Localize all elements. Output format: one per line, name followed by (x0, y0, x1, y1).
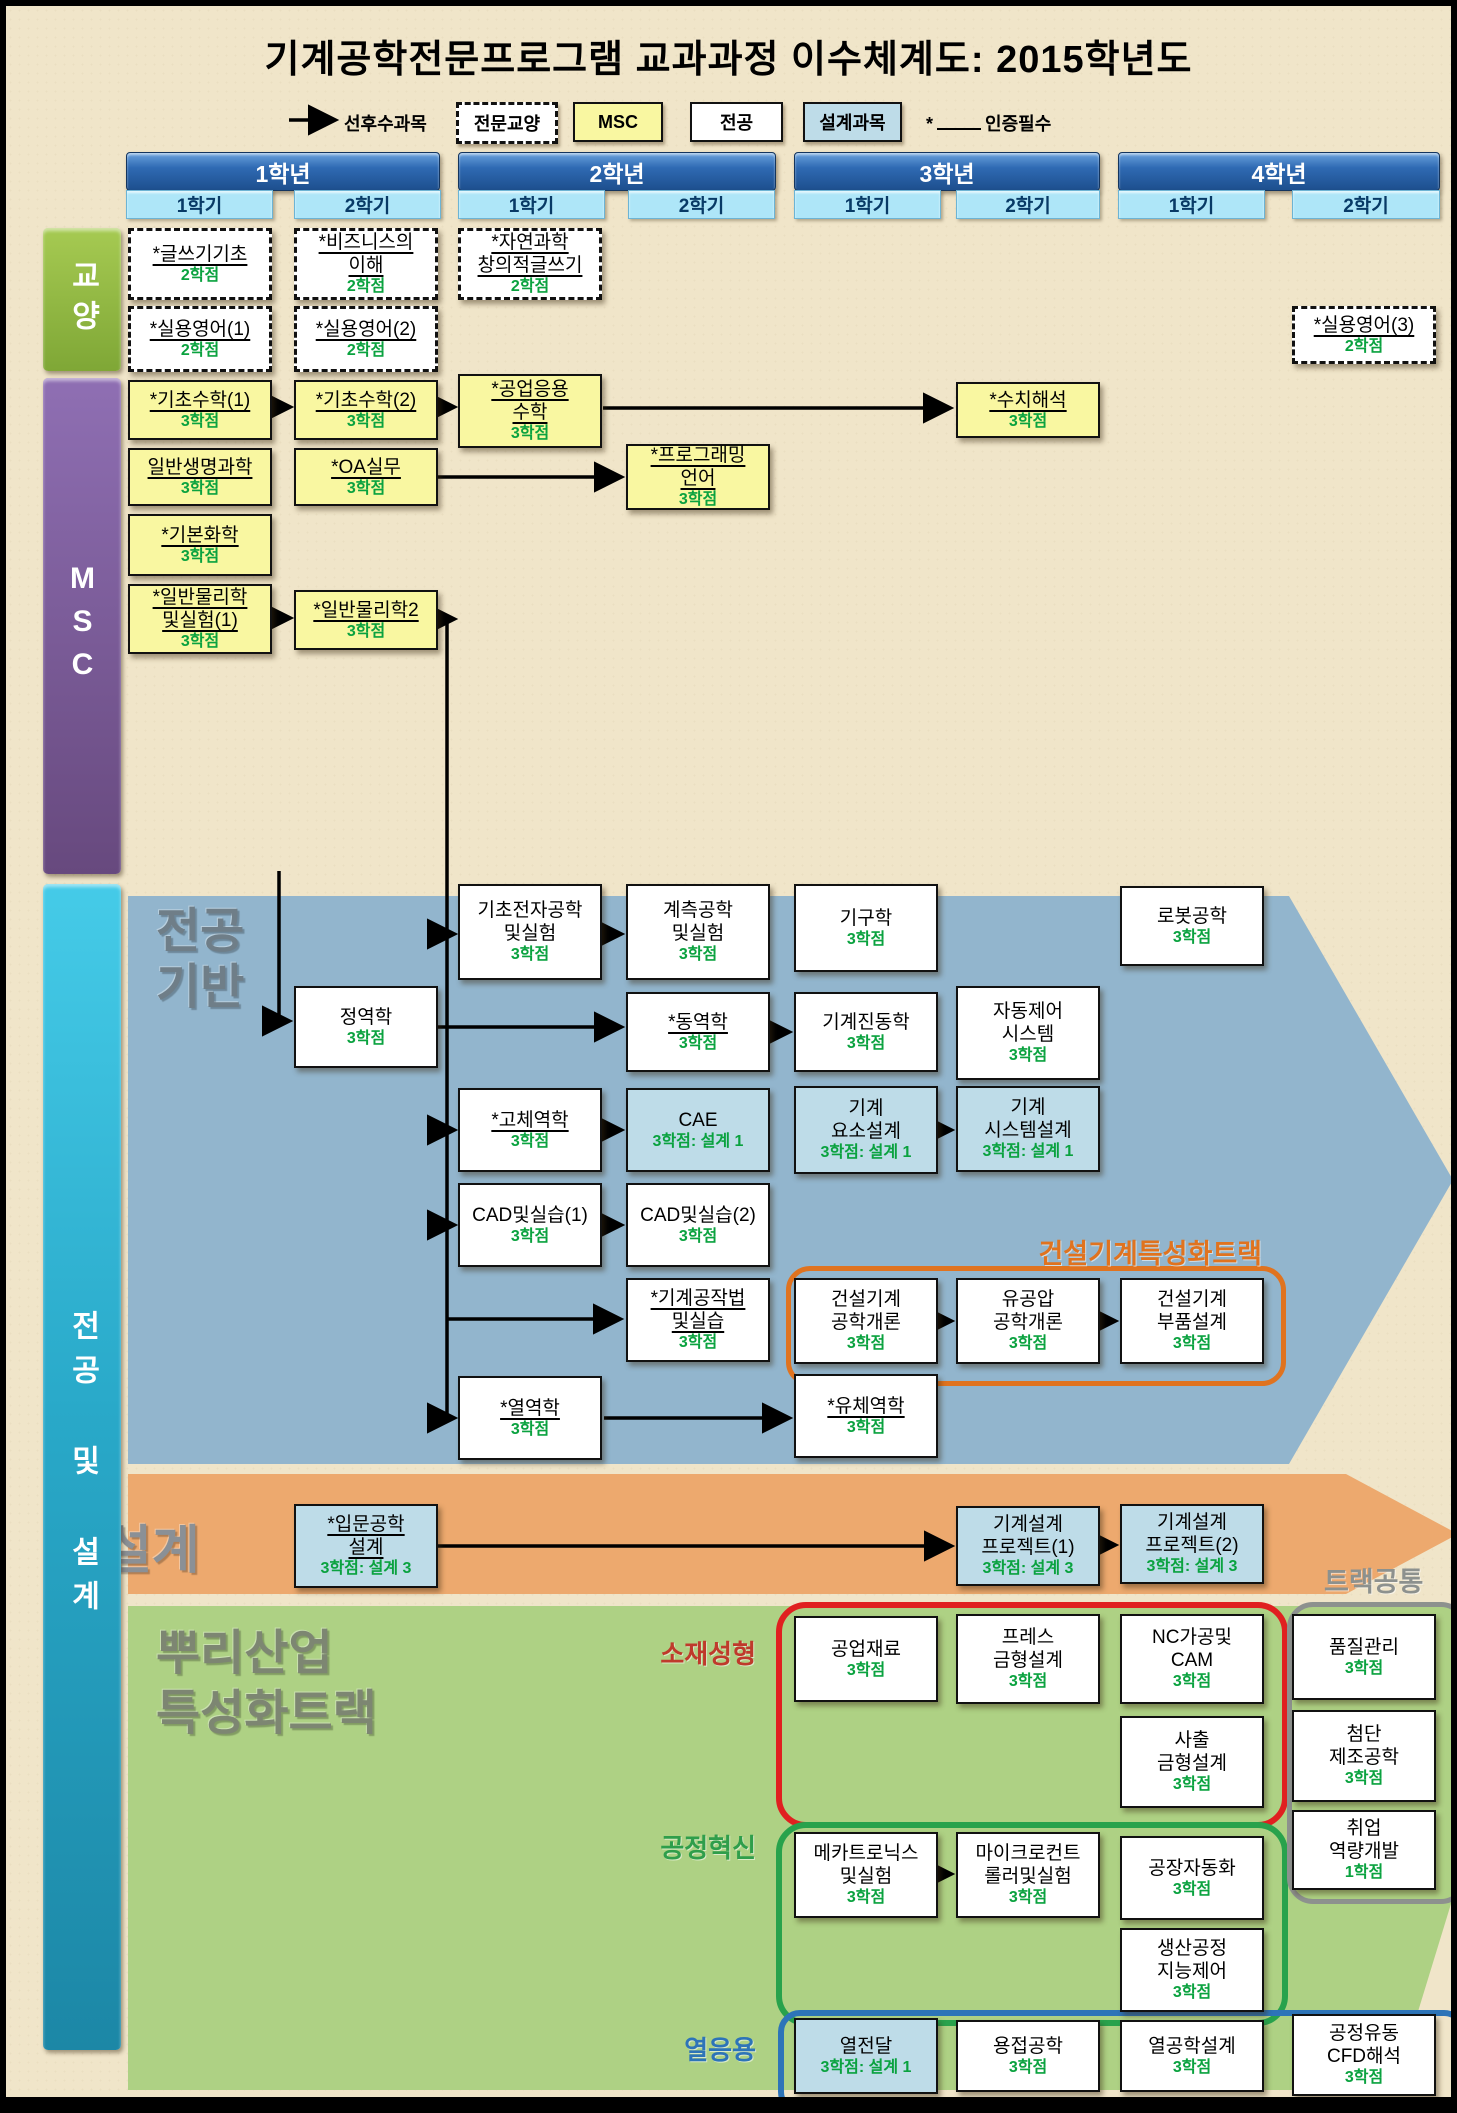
course-credit: 3학점 (1173, 1880, 1211, 1900)
course-box: *기계공작법및실습3학점 (626, 1278, 770, 1362)
course-credit: 3학점 (847, 1034, 885, 1054)
course-name: *기초수학(1) (150, 389, 251, 412)
course-name: 기계설계프로젝트(2) (1145, 1511, 1238, 1557)
course-box: *입문공학설계3학점: 설계 3 (294, 1504, 438, 1588)
course-box: 기계설계프로젝트(2)3학점: 설계 3 (1120, 1504, 1264, 1584)
course-box: *실용영어(2)2학점 (294, 306, 438, 372)
course-box: *실용영어(1)2학점 (128, 306, 272, 372)
course-name: *자연과학창의적글쓰기 (478, 231, 583, 277)
course-box: *공업응용수학3학점 (458, 374, 602, 448)
course-credit: 2학점 (1345, 337, 1383, 357)
course-box: 자동제어시스템3학점 (956, 986, 1100, 1080)
course-name: 메카트로닉스및실험 (814, 1842, 919, 1888)
course-box: 기초전자공학및실험3학점 (458, 884, 602, 980)
course-box: *일반물리학및실험(1)3학점 (128, 584, 272, 654)
course-name: 건설기계부품설계 (1157, 1288, 1227, 1334)
curriculum-flowchart: 전공 기반 설계 뿌리산업 특성화트랙 기계공학전문프로그램 교과과정 이수체계… (0, 0, 1457, 2113)
course-name: 기계진동학 (822, 1011, 909, 1034)
course-name: 유공압공학개론 (993, 1288, 1063, 1334)
year-header-4: 4학년 (1118, 152, 1440, 191)
course-name: 품질관리 (1329, 1636, 1399, 1659)
sidebar-major-design-label: 전공 및 설계 (60, 1310, 104, 1624)
course-credit: 3학점 (347, 412, 385, 432)
course-name: *일반물리학2 (313, 599, 418, 622)
course-name: *비즈니스의이해 (319, 231, 414, 277)
course-box: 공업재료3학점 (794, 1616, 938, 1702)
course-name: 공장자동화 (1148, 1857, 1235, 1880)
course-box: 용접공학3학점 (956, 2020, 1100, 2092)
course-name: 기계요소설계 (831, 1097, 901, 1143)
legend-general-box: 전문교양 (456, 102, 558, 144)
course-credit: 2학점 (181, 341, 219, 361)
course-credit: 3학점 (847, 1334, 885, 1354)
course-box: *프로그래밍언어3학점 (626, 444, 770, 510)
course-name: NC가공및CAM (1152, 1626, 1232, 1672)
process-group-label: 공정혁신 (660, 1828, 756, 1865)
course-box: 열공학설계3학점 (1120, 2020, 1264, 2092)
course-name: 공정유동CFD해석 (1327, 2022, 1401, 2068)
course-credit: 3학점 (1009, 1888, 1047, 1908)
course-box: *열역학3학점 (458, 1376, 602, 1460)
sidebar-general-label: 교양 (60, 260, 104, 340)
course-name: 계측공학및실험 (663, 899, 733, 945)
course-credit: 3학점 (181, 412, 219, 432)
course-name: 프레스금형설계 (993, 1626, 1063, 1672)
course-credit: 3학점: 설계 3 (983, 1559, 1074, 1579)
course-name: *OA실무 (331, 456, 401, 479)
sidebar-general: 교양 (43, 228, 121, 371)
semester-header-3-2: 2학기 (956, 190, 1100, 219)
track-common-label: 트랙공통 (1324, 1560, 1423, 1599)
course-box: 기계시스템설계3학점: 설계 1 (956, 1086, 1100, 1172)
course-name: *공업응용수학 (491, 378, 568, 424)
course-name: 자동제어시스템 (993, 1000, 1063, 1046)
legend-design-label: 설계과목 (819, 109, 885, 135)
course-credit: 3학점 (1009, 1046, 1047, 1066)
course-credit: 3학점 (1173, 2058, 1211, 2078)
course-credit: 3학점 (1345, 1769, 1383, 1789)
course-credit: 2학점 (347, 341, 385, 361)
materials-group-label: 소재성형 (660, 1634, 756, 1671)
course-box: *일반물리학23학점 (294, 590, 438, 650)
course-name: *고체역학 (491, 1109, 568, 1132)
sidebar-msc: MSC (43, 378, 121, 874)
course-credit: 3학점 (847, 1418, 885, 1438)
course-credit: 3학점 (1173, 1983, 1211, 2003)
course-credit: 3학점 (511, 1132, 549, 1152)
course-credit: 3학점 (1173, 1672, 1211, 1692)
course-box: 취업역량개발1학점 (1292, 1810, 1436, 1890)
course-box: 건설기계부품설계3학점 (1120, 1278, 1264, 1364)
course-credit: 3학점 (181, 479, 219, 499)
course-box: CAD및실습(1)3학점 (458, 1183, 602, 1267)
course-credit: 3학점 (679, 945, 717, 965)
year-header-2: 2학년 (458, 152, 776, 191)
course-box: *실용영어(3)2학점 (1292, 306, 1436, 364)
course-box: 로봇공학3학점 (1120, 886, 1264, 966)
course-credit: 3학점 (511, 1420, 549, 1440)
course-name: *실용영어(1) (150, 318, 251, 341)
course-name: 일반생명과학 (148, 456, 253, 479)
course-name: *실용영어(3) (1314, 314, 1415, 337)
course-name: 정역학 (340, 1006, 392, 1029)
semester-header-4-1: 1학기 (1118, 190, 1265, 219)
course-name: CAE (678, 1109, 717, 1132)
course-name: 사출금형설계 (1157, 1729, 1227, 1775)
course-name: 첨단제조공학 (1329, 1723, 1399, 1769)
course-box: 기계설계프로젝트(1)3학점: 설계 3 (956, 1506, 1100, 1586)
course-name: 로봇공학 (1157, 905, 1227, 928)
course-name: 생산공정지능제어 (1157, 1937, 1227, 1983)
course-box: 건설기계공학개론3학점 (794, 1278, 938, 1364)
course-box: 첨단제조공학3학점 (1292, 1710, 1436, 1802)
course-credit: 3학점 (347, 1029, 385, 1049)
course-box: *수치해석3학점 (956, 382, 1100, 438)
course-name: 기계설계프로젝트(1) (981, 1513, 1074, 1559)
course-box: 정역학3학점 (294, 986, 438, 1068)
year-header-3: 3학년 (794, 152, 1100, 191)
course-credit: 3학점 (1345, 2068, 1383, 2088)
course-name: *프로그래밍언어 (651, 444, 746, 490)
course-box: 유공압공학개론3학점 (956, 1278, 1100, 1364)
course-credit: 3학점 (1009, 1672, 1047, 1692)
course-credit: 3학점 (847, 1888, 885, 1908)
construction-track-label: 건설기계특성화트랙 (1038, 1232, 1262, 1271)
course-credit: 3학점: 설계 1 (983, 1142, 1074, 1162)
thermal-group-label: 열응용 (684, 2030, 756, 2067)
course-credit: 3학점 (679, 490, 717, 510)
course-box: 생산공정지능제어3학점 (1120, 1928, 1264, 2012)
course-box: 사출금형설계3학점 (1120, 1716, 1264, 1808)
course-name: *기초수학(2) (316, 389, 417, 412)
course-name: 건설기계공학개론 (831, 1288, 901, 1334)
course-credit: 3학점: 설계 1 (821, 2058, 912, 2078)
course-name: CAD및실습(1) (472, 1204, 588, 1227)
course-box: *고체역학3학점 (458, 1088, 602, 1172)
course-box: 품질관리3학점 (1292, 1614, 1436, 1700)
course-name: *수치해석 (989, 389, 1066, 412)
course-box: CAD및실습(2)3학점 (626, 1183, 770, 1267)
course-box: *동역학3학점 (626, 992, 770, 1072)
sidebar-msc-label: MSC (65, 562, 99, 691)
course-credit: 3학점 (347, 622, 385, 642)
semester-header-2-2: 2학기 (628, 190, 775, 219)
course-credit: 3학점: 설계 3 (321, 1559, 412, 1579)
course-box: *기초수학(2)3학점 (294, 380, 438, 440)
course-credit: 3학점 (1173, 1334, 1211, 1354)
course-name: *기본화학 (161, 524, 238, 547)
semester-header-2-1: 1학기 (458, 190, 605, 219)
course-credit: 2학점 (347, 277, 385, 297)
course-credit: 2학점 (511, 277, 549, 297)
course-box: 프레스금형설계3학점 (956, 1614, 1100, 1704)
sidebar-major-design: 전공 및 설계 (43, 884, 121, 2050)
course-name: *유체역학 (827, 1395, 904, 1418)
semester-header-1-1: 1학기 (126, 190, 273, 219)
legend-major-box: 전공 (690, 102, 783, 142)
semester-header-3-1: 1학기 (794, 190, 941, 219)
course-credit: 3학점 (1173, 928, 1211, 948)
semester-header-4-2: 2학기 (1292, 190, 1440, 219)
course-name: *실용영어(2) (316, 318, 417, 341)
year-header-1: 1학년 (126, 152, 440, 191)
course-name: *입문공학설계 (327, 1513, 404, 1559)
course-box: *기본화학3학점 (128, 514, 272, 576)
course-credit: 2학점 (181, 266, 219, 286)
course-credit: 3학점 (1009, 2058, 1047, 2078)
course-name: 열전달 (840, 2035, 892, 2058)
course-box: CAE3학점: 설계 1 (626, 1088, 770, 1172)
course-name: 기계시스템설계 (984, 1096, 1071, 1142)
course-box: 마이크로컨트롤러및실험3학점 (956, 1832, 1100, 1918)
legend-msc-label: MSC (598, 112, 638, 133)
course-credit: 3학점 (181, 547, 219, 567)
course-credit: 3학점 (679, 1034, 717, 1054)
course-credit: 1학점 (1345, 1863, 1383, 1883)
course-box: 메카트로닉스및실험3학점 (794, 1832, 938, 1918)
course-box: 일반생명과학3학점 (128, 448, 272, 506)
course-name: *글쓰기기초 (153, 243, 248, 266)
course-box: *기초수학(1)3학점 (128, 380, 272, 440)
course-name: 용접공학 (993, 2035, 1063, 2058)
course-box: 열전달3학점: 설계 1 (794, 2018, 938, 2094)
course-name: 공업재료 (831, 1638, 901, 1661)
bottom-border (6, 2097, 1451, 2107)
course-box: *자연과학창의적글쓰기2학점 (458, 228, 602, 300)
semester-header-1-2: 2학기 (294, 190, 441, 219)
course-name: 취업역량개발 (1329, 1817, 1399, 1863)
legend-major-label: 전공 (720, 109, 753, 135)
course-box: *OA실무3학점 (294, 448, 438, 506)
course-box: 기계요소설계3학점: 설계 1 (794, 1086, 938, 1174)
course-box: *비즈니스의이해2학점 (294, 228, 438, 300)
course-name: 기구학 (840, 907, 892, 930)
legend-general-label: 전문교양 (474, 110, 540, 136)
course-credit: 3학점 (1173, 1775, 1211, 1795)
course-credit: 3학점 (1345, 1659, 1383, 1679)
course-box: 기계진동학3학점 (794, 992, 938, 1072)
course-name: 기초전자공학및실험 (478, 899, 583, 945)
course-credit: 3학점 (181, 632, 219, 652)
course-box: 기구학3학점 (794, 884, 938, 972)
course-credit: 3학점: 설계 1 (653, 1132, 744, 1152)
course-credit: 3학점 (347, 479, 385, 499)
course-box: 계측공학및실험3학점 (626, 884, 770, 980)
course-credit: 3학점 (847, 930, 885, 950)
course-credit: 3학점 (679, 1227, 717, 1247)
course-box: *유체역학3학점 (794, 1374, 938, 1458)
course-box: NC가공및CAM3학점 (1120, 1614, 1264, 1704)
course-credit: 3학점 (679, 1333, 717, 1353)
course-name: CAD및실습(2) (640, 1204, 756, 1227)
course-credit: 3학점 (511, 424, 549, 444)
course-name: *기계공작법및실습 (651, 1287, 746, 1333)
course-credit: 3학점 (1009, 1334, 1047, 1354)
course-name: *열역학 (500, 1397, 560, 1420)
course-box: 공정유동CFD해석3학점 (1292, 2014, 1436, 2096)
course-name: 마이크로컨트롤러및실험 (976, 1842, 1081, 1888)
course-name: *동역학 (668, 1011, 728, 1034)
course-box: *글쓰기기초2학점 (128, 228, 272, 300)
course-credit: 3학점: 설계 3 (1147, 1557, 1238, 1577)
course-name: *일반물리학및실험(1) (153, 586, 248, 632)
course-credit: 3학점 (847, 1661, 885, 1681)
course-credit: 3학점 (511, 1227, 549, 1247)
course-credit: 3학점 (511, 945, 549, 965)
legend-design-box: 설계과목 (803, 102, 902, 142)
course-name: 열공학설계 (1148, 2035, 1235, 2058)
course-credit: 3학점 (1009, 412, 1047, 432)
course-box: 공장자동화3학점 (1120, 1836, 1264, 1920)
legend-msc-box: MSC (573, 102, 663, 142)
course-credit: 3학점: 설계 1 (821, 1143, 912, 1163)
